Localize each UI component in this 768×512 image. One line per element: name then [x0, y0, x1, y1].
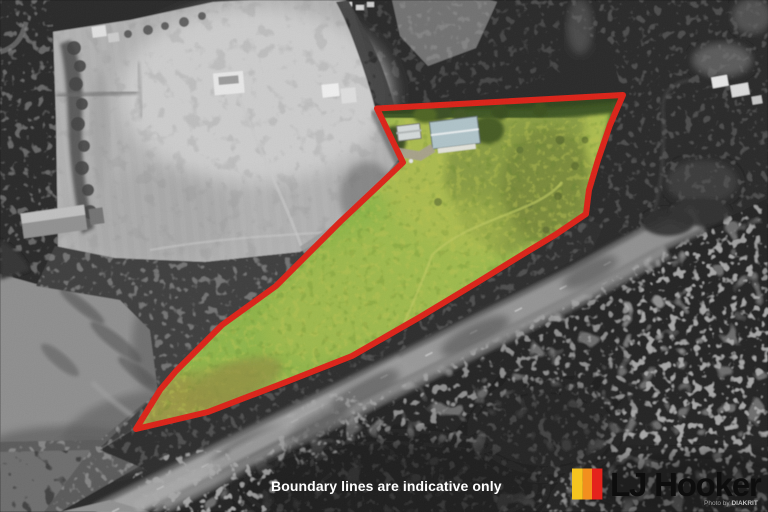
- svg-text:Photo by DIAKRIT: Photo by DIAKRIT: [704, 500, 758, 507]
- svg-text:Boundary lines are indicative: Boundary lines are indicative only: [271, 478, 502, 494]
- svg-text:LJ Hooker: LJ Hooker: [610, 466, 762, 503]
